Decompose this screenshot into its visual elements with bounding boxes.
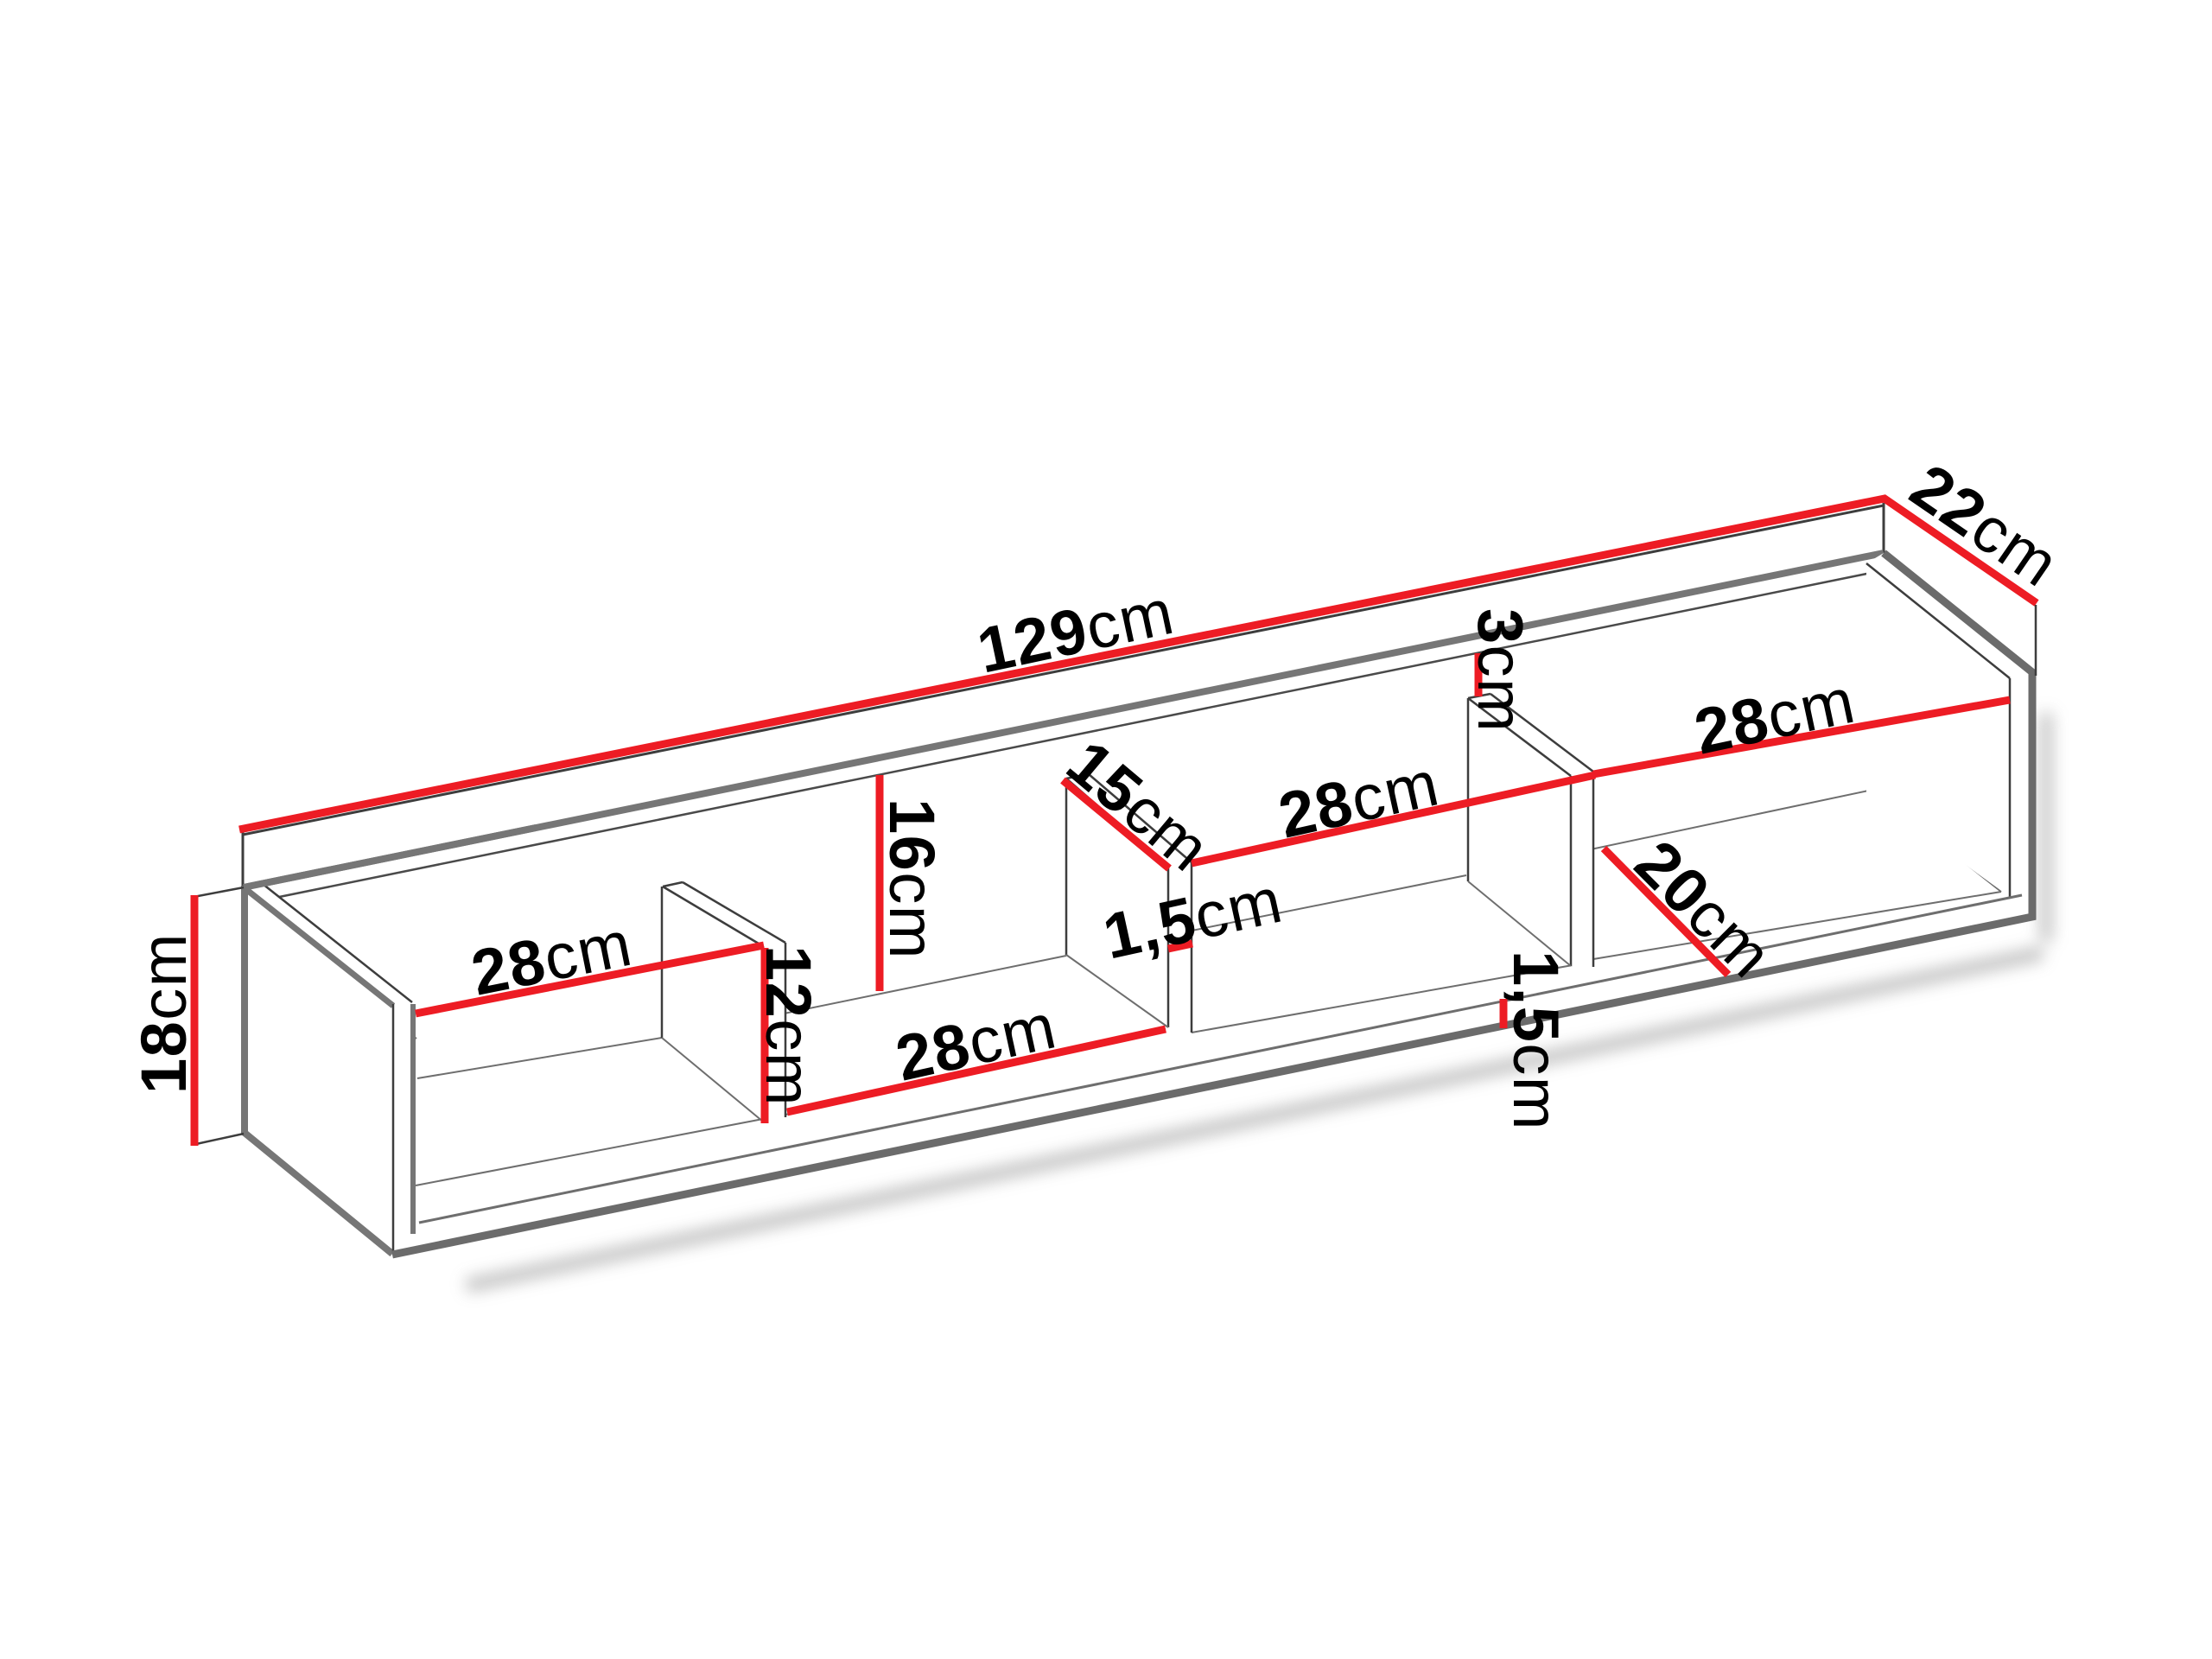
svg-text:3cm: 3cm: [1465, 608, 1536, 733]
svg-text:12cm: 12cm: [753, 945, 824, 1107]
svg-text:18cm: 18cm: [128, 932, 200, 1094]
svg-text:1,5cm: 1,5cm: [1500, 950, 1572, 1131]
svg-text:16cm: 16cm: [876, 798, 948, 960]
